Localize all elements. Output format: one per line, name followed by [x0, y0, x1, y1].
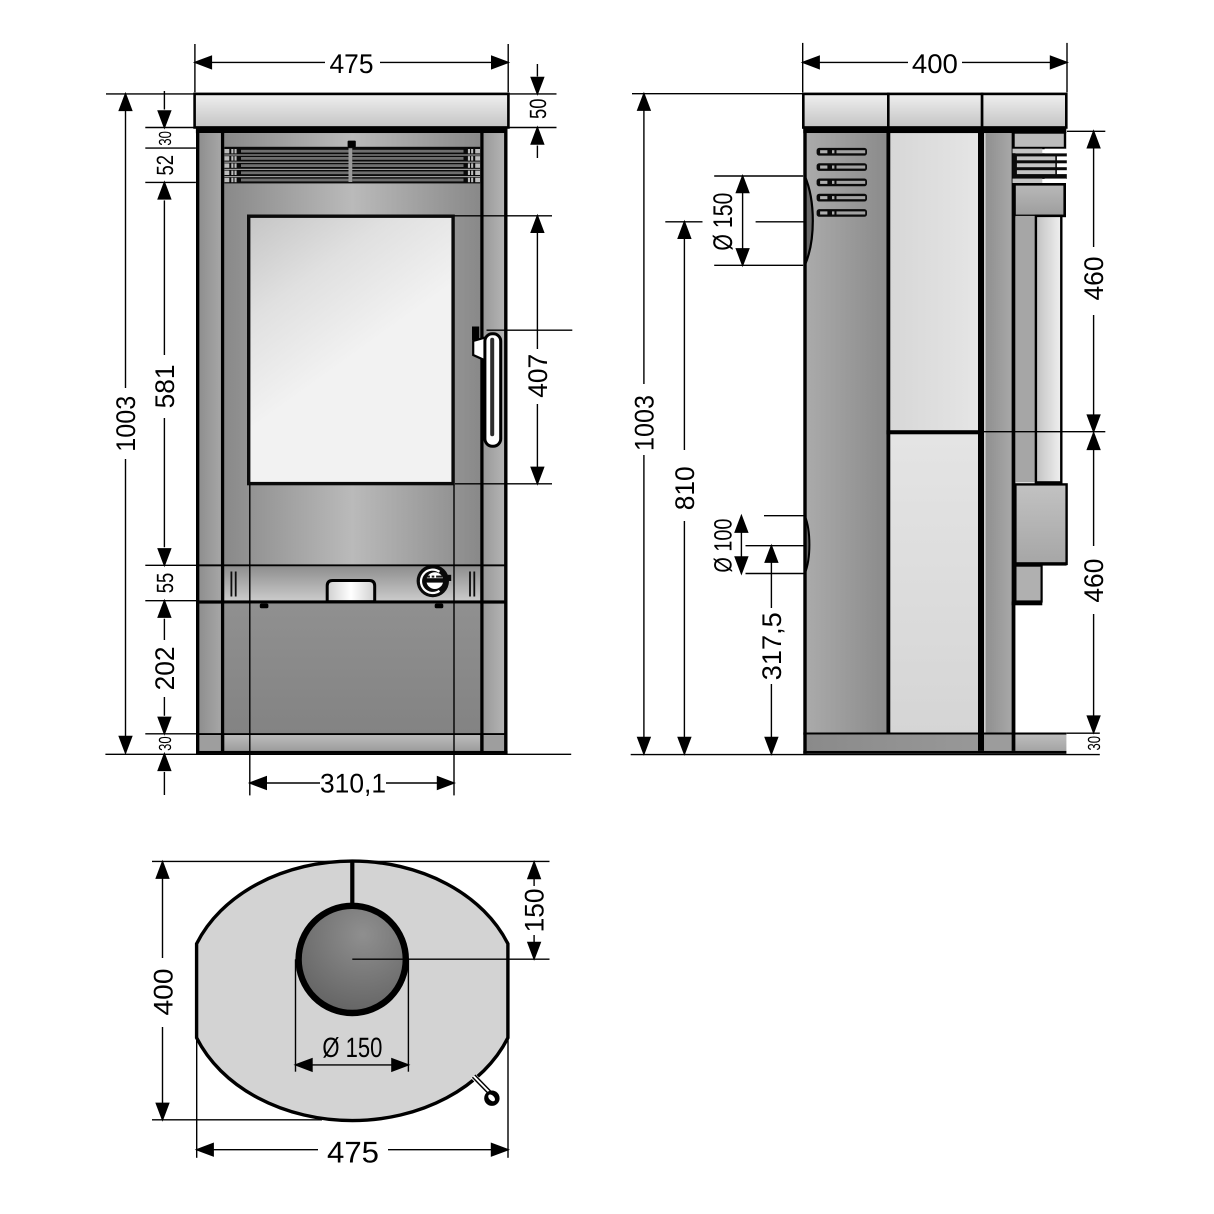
svg-text:400: 400	[148, 969, 178, 1016]
svg-text:407: 407	[523, 354, 553, 398]
svg-text:55: 55	[152, 573, 178, 594]
svg-text:400: 400	[912, 49, 958, 79]
svg-text:1003: 1003	[629, 395, 659, 451]
svg-text:810: 810	[670, 466, 700, 510]
svg-text:52: 52	[152, 155, 178, 176]
svg-text:30: 30	[155, 131, 175, 146]
svg-text:581: 581	[150, 364, 180, 408]
svg-text:202: 202	[150, 646, 180, 690]
svg-text:Ø 100: Ø 100	[709, 519, 737, 573]
svg-text:Ø 150: Ø 150	[322, 1032, 382, 1063]
svg-text:1003: 1003	[111, 396, 141, 452]
svg-text:Ø 150: Ø 150	[708, 193, 738, 251]
svg-text:317,5: 317,5	[757, 612, 787, 680]
svg-text:30: 30	[1084, 736, 1104, 751]
svg-text:150: 150	[520, 888, 550, 932]
svg-text:475: 475	[330, 49, 374, 79]
svg-text:475: 475	[327, 1137, 379, 1170]
svg-text:50: 50	[525, 99, 551, 120]
svg-text:460: 460	[1079, 559, 1109, 603]
svg-text:310,1: 310,1	[320, 769, 386, 799]
svg-text:460: 460	[1079, 257, 1109, 301]
svg-text:30: 30	[155, 736, 175, 751]
